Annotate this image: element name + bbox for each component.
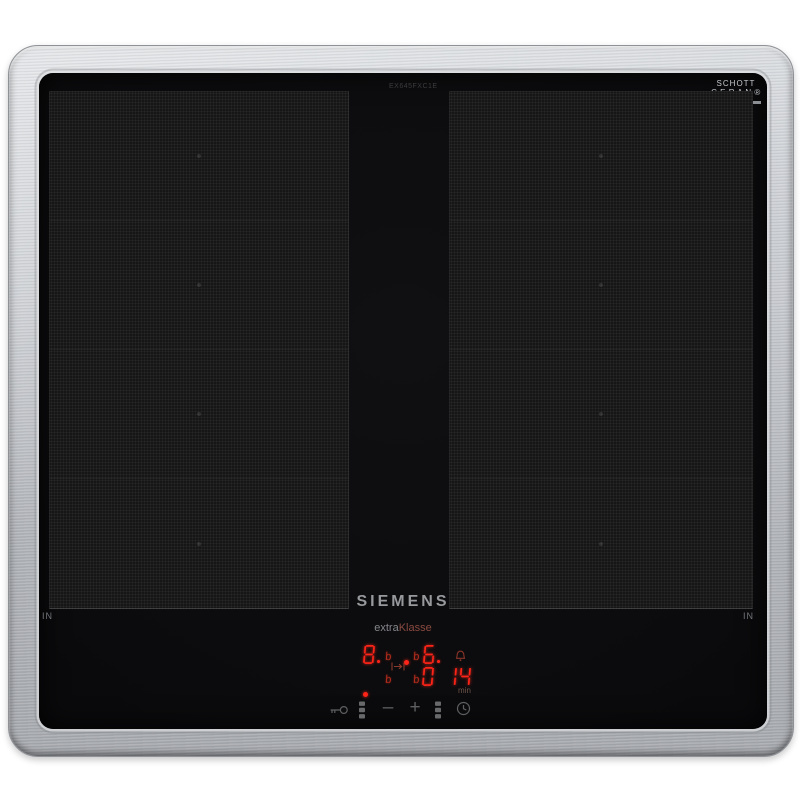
timer-min-unit-label: min [458,686,471,695]
child-lock-button[interactable] [329,703,349,716]
cook-zone-right-segment-2 [450,221,752,350]
power-level-display-right [423,645,440,664]
zone-select-left-button[interactable] [357,700,367,719]
bridge-arrow-icon [391,662,405,671]
timer-display-minutes [445,667,471,686]
cooktop-steel-frame: EX645FXC1E SCHOTT C E R A N ® IN IN SI [8,45,794,757]
bell-icon [454,650,467,662]
timer-display-hours [422,667,434,686]
extraklasse-label-normal: extra [374,622,398,634]
slider-dots-icon [434,701,442,719]
extraklasse-label-accent: Klasse [399,622,432,634]
extraklasse-label: extraKlasse [39,622,767,634]
clock-icon [456,701,471,716]
siemens-logo: SIEMENS [39,593,767,611]
power-minus-button[interactable]: – [379,697,397,717]
model-code: EX645FXC1E [389,83,438,90]
slider-dots-icon [358,701,366,719]
timer-button[interactable] [455,700,471,716]
power-level-display-left [363,645,380,664]
schott-label-line1: SCHOTT [711,79,761,88]
power-plus-button[interactable]: + [406,697,424,717]
cook-zone-right [449,91,753,609]
plus-icon: + [409,698,420,717]
cook-zone-left [49,91,349,609]
cooktop-glass-surface: EX645FXC1E SCHOTT C E R A N ® IN IN SI [39,73,767,729]
control-active-dot [363,692,368,697]
cook-zone-right-segment-1 [450,92,752,221]
key-icon [329,704,349,716]
boost-indicator-bottom-left: b [385,673,393,686]
boost-indicator-top-right: b [413,650,421,663]
cook-zone-left-segment-2 [50,221,348,350]
cook-zone-right-segment-3 [450,350,752,479]
minus-icon: – [383,698,394,717]
in-marker-left: IN [42,611,53,621]
cook-zone-left-segment-3 [50,350,348,479]
in-marker-right: IN [743,611,754,621]
cook-zone-left-segment-1 [50,92,348,221]
zone-select-right-button[interactable] [433,700,443,719]
boost-indicator-bottom-right: b [413,673,421,686]
cook-zone-left-segment-4 [50,479,348,608]
product-photo: EX645FXC1E SCHOTT C E R A N ® IN IN SI [0,0,800,800]
cook-zone-right-segment-4 [450,479,752,608]
